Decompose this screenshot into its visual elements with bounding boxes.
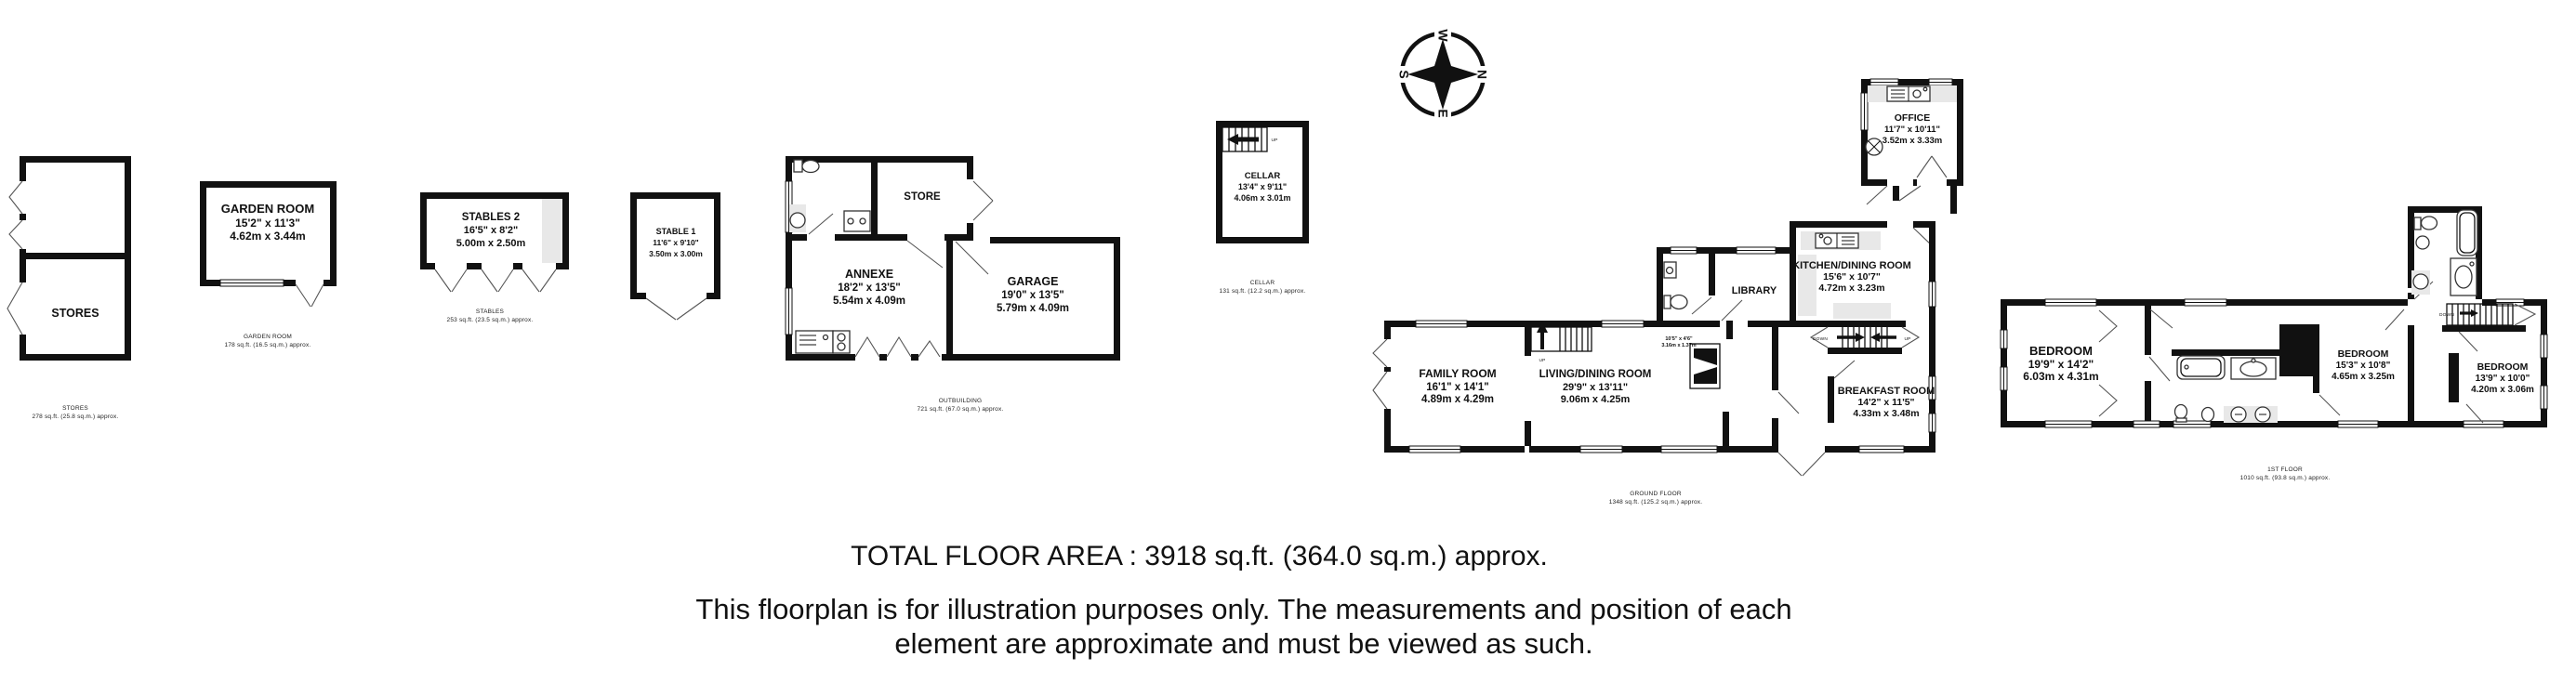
ground-window-bottom-2 (1580, 446, 1622, 453)
office-boiler-icon (1866, 138, 1882, 155)
compass-west: W (1436, 29, 1451, 42)
first-window-bottom-2 (2133, 421, 2160, 427)
bedroom3-chimney (2449, 353, 2459, 402)
annexe-basin-icon (790, 213, 805, 228)
library-window-2 (1737, 247, 1776, 254)
cellar-up-label: UP (1271, 138, 1277, 143)
first-bidet-icon (2202, 408, 2214, 422)
stables2-metric: 5.00m x 2.50m (456, 238, 526, 249)
cellar-stairs: UP (1222, 127, 1278, 151)
first-window-right-1 (2541, 335, 2547, 358)
ensuite-sink-unit-icon (2451, 258, 2477, 295)
garden-room-caption-title: GARDEN ROOM (244, 334, 292, 340)
ground-window-bottom-1 (1409, 446, 1460, 453)
family-stairs: UP (1531, 322, 1592, 363)
kitchen-window-right-1 (1929, 282, 1935, 307)
disclaimer-line-2: element are approximate and must be view… (894, 627, 1592, 660)
garden-room-label: GARDEN ROOM (221, 202, 314, 216)
first-window-bottom-1 (2045, 421, 2092, 427)
annexe-metric: 5.54m x 4.09m (833, 295, 905, 307)
kitchen-label: KITCHEN/DINING ROOM (1792, 260, 1911, 271)
stable1-metric: 3.50m x 3.00m (649, 249, 703, 258)
stable1-label: STABLE 1 (656, 227, 696, 236)
bedroom3-label: BEDROOM (2477, 361, 2529, 373)
cellar-imperial: 13'4" x 9'11" (1238, 182, 1287, 191)
building-first-floor: DOWN BEDROOM 19'9" x 14'2" 6.03m x 4.31m… (2001, 206, 2547, 481)
total-floor-area: TOTAL FLOOR AREA : 3918 sq.ft. (364.0 sq… (851, 541, 1548, 571)
compass-rose-icon: W N E S (1395, 27, 1490, 122)
first-window-left-1 (2001, 330, 2007, 348)
office-sink-icon (1887, 86, 1930, 101)
ensuite-wash-basin-icon (2411, 270, 2430, 295)
outbuilding-caption-title: OUTBUILDING (939, 398, 983, 404)
office-imperial: 11'7" x 10'11" (1884, 125, 1940, 135)
first-sink-unit-icon (2231, 358, 2276, 379)
family-room-window-top (1416, 321, 1467, 327)
first-down-label: DOWN (2439, 312, 2454, 318)
first-window-top-3 (2496, 299, 2524, 306)
first-chimney (2279, 324, 2313, 376)
garden-room-imperial: 15'2" x 11'3" (235, 217, 300, 230)
breakfast-label: BREAKFAST ROOM (1838, 386, 1935, 397)
kitchen-metric: 4.72m x 3.23m (1818, 282, 1884, 294)
garden-room-caption-area: 178 sq.ft. (16.5 sq.m.) approx. (225, 342, 311, 348)
outbuilding-caption-area: 721 sq.ft. (67.0 sq.m.) approx. (918, 406, 1004, 413)
ground-window-bottom-3 (1661, 446, 1717, 453)
breakfast-imperial: 14'2" x 11'5" (1857, 397, 1914, 408)
first-toilet-icon (2175, 405, 2187, 423)
annexe-window-left-2 (786, 288, 792, 335)
floorplan-page: STORES STORES 278 sq.ft. (25.8 sq.m.) ap… (0, 0, 2576, 696)
wc-toilet-icon (1664, 295, 1687, 309)
inglenook-fireplace-icon (1690, 344, 1720, 388)
first-window-top-1 (2045, 299, 2096, 306)
ground-window-bottom-4 (1859, 446, 1904, 453)
inglenook-imperial: 10'5" x 4'6" (1665, 336, 1693, 342)
bedroom2-metric: 4.65m x 3.25m (2332, 372, 2395, 382)
first-twin-sinks-icon (2224, 406, 2278, 423)
bedroom1-metric: 6.03m x 4.31m (2023, 370, 2098, 383)
stables-caption-title: STABLES (476, 309, 505, 315)
first-floor-caption-title: 1ST FLOOR (2267, 466, 2303, 473)
family-room-label: FAMILY ROOM (1419, 367, 1496, 380)
wc-sink-icon (1664, 262, 1676, 278)
annexe-label: ANNEXE (845, 268, 893, 281)
living-room-metric: 9.06m x 4.25m (1561, 394, 1631, 405)
first-window-right-2 (2541, 386, 2547, 409)
ground-up-label: UP (1539, 358, 1545, 363)
kitchen-sink-icon (1816, 233, 1858, 248)
hall-down-label: DOWN (1813, 336, 1828, 342)
bedroom2-imperial: 15'3" x 10'8" (2336, 361, 2391, 371)
compass-south: S (1397, 70, 1412, 78)
stables2-label: STABLES 2 (462, 212, 520, 223)
garage-metric: 5.79m x 4.09m (997, 303, 1069, 314)
stores-caption-title: STORES (62, 405, 88, 412)
family-room-imperial: 16'1" x 14'1" (1426, 382, 1489, 393)
living-room-imperial: 29'9" x 13'11" (1563, 382, 1628, 393)
garage-label: GARAGE (1008, 275, 1059, 288)
store-label: STORE (904, 191, 941, 203)
cellar-metric: 4.06m x 3.01m (1234, 193, 1290, 203)
footer-text: TOTAL FLOOR AREA : 3918 sq.ft. (364.0 sq… (695, 541, 1791, 660)
first-floor-stairs: DOWN (2439, 304, 2535, 332)
building-outbuilding: STORE ANNEXE 18'2" x 13'5" 5.54m x 4.09m… (786, 156, 1120, 413)
building-stable-1: STABLE 1 11'6" x 9'10" 3.50m x 3.00m (630, 192, 720, 320)
annexe-kitchenette-icon (796, 331, 850, 353)
hall-up-label: UP (1904, 336, 1910, 342)
stables2-imperial: 16'5" x 8'2" (464, 225, 518, 236)
breakfast-metric: 4.33m x 3.48m (1853, 408, 1919, 419)
ground-floor-caption-area: 1348 sq.ft. (125.2 sq.m.) approx. (1609, 499, 1703, 506)
family-room-metric: 4.89m x 4.29m (1421, 394, 1494, 405)
bedroom3-metric: 4.20m x 3.06m (2471, 385, 2534, 395)
hall-stairs: DOWN UP (1811, 327, 1919, 354)
ground-floor-caption-title: GROUND FLOOR (1630, 491, 1682, 497)
first-window-left-2 (2001, 367, 2007, 390)
compass-north: N (1475, 70, 1490, 79)
bedroom1-label: BEDROOM (2029, 344, 2093, 358)
living-room-window-top (1602, 321, 1644, 327)
library-window-1 (1671, 247, 1697, 254)
compass-east: E (1436, 109, 1451, 117)
annexe-sink-unit-icon (844, 211, 870, 231)
garden-room-metric: 4.62m x 3.44m (230, 230, 305, 243)
library-label: LIBRARY (1732, 285, 1777, 296)
kitchen-window-right-3 (1929, 414, 1935, 432)
bedroom2-label: BEDROOM (2338, 348, 2389, 360)
garage-imperial: 19'0" x 13'5" (1001, 290, 1064, 301)
ensuite-toilet-icon (2414, 217, 2437, 230)
first-floor-caption-area: 1010 sq.ft. (93.8 sq.m.) approx. (2240, 475, 2331, 481)
office-window-top-1 (1870, 79, 1898, 85)
cellar-caption-title: CELLAR (1250, 280, 1275, 286)
building-stables-2: STABLES 2 16'5" x 8'2" 5.00m x 2.50m STA… (420, 192, 569, 323)
disclaimer-line-1: This floorplan is for illustration purpo… (695, 593, 1791, 625)
cellar-label: CELLAR (1245, 171, 1281, 181)
inglenook-metric: 3.16m x 1.37m (1661, 343, 1696, 348)
first-window-bottom-4 (2338, 421, 2378, 427)
ensuite-bath-icon (2457, 210, 2477, 256)
office-window-left (1861, 93, 1868, 130)
first-bath-icon (2177, 356, 2225, 379)
stores-label: STORES (51, 307, 99, 320)
office-metric: 3.52m x 3.33m (1882, 136, 1942, 146)
building-stores: STORES STORES 278 sq.ft. (25.8 sq.m.) ap… (7, 156, 131, 420)
first-window-bottom-5 (2464, 421, 2503, 427)
stables-caption-area: 253 sq.ft. (23.5 sq.m.) approx. (447, 317, 534, 323)
stores-caption-area: 278 sq.ft. (25.8 sq.m.) approx. (33, 414, 119, 420)
kitchen-imperial: 15'6" x 10'7" (1823, 271, 1881, 282)
annexe-toilet-icon (794, 160, 819, 173)
building-garden-room: GARDEN ROOM 15'2" x 11'3" 4.62m x 3.44m … (200, 181, 337, 348)
stable1-imperial: 11'6" x 9'10" (653, 238, 698, 247)
floorplan-canvas: STORES STORES 278 sq.ft. (25.8 sq.m.) ap… (0, 0, 2576, 696)
building-ground-floor: UP 10'5" x 4'6" 3.16m x 1.37m (1373, 221, 1935, 506)
cellar-caption-area: 131 sq.ft. (12.2 sq.m.) approx. (1220, 288, 1306, 295)
office-label: OFFICE (1895, 112, 1931, 124)
office-window-top-2 (1929, 79, 1952, 85)
bedroom3-imperial: 13'9" x 10'0" (2476, 374, 2530, 384)
annexe-imperial: 18'2" x 13'5" (838, 282, 901, 294)
ensuite-basin-icon (2416, 236, 2429, 249)
first-window-top-2 (2185, 299, 2226, 306)
living-room-label: LIVING/DINING ROOM (1539, 369, 1652, 380)
bedroom1-imperial: 19'9" x 14'2" (2028, 358, 2094, 371)
building-cellar: UP CELLAR 13'4" x 9'11" 4.06m x 3.01m CE… (1216, 121, 1309, 295)
garden-room-window (220, 280, 284, 286)
